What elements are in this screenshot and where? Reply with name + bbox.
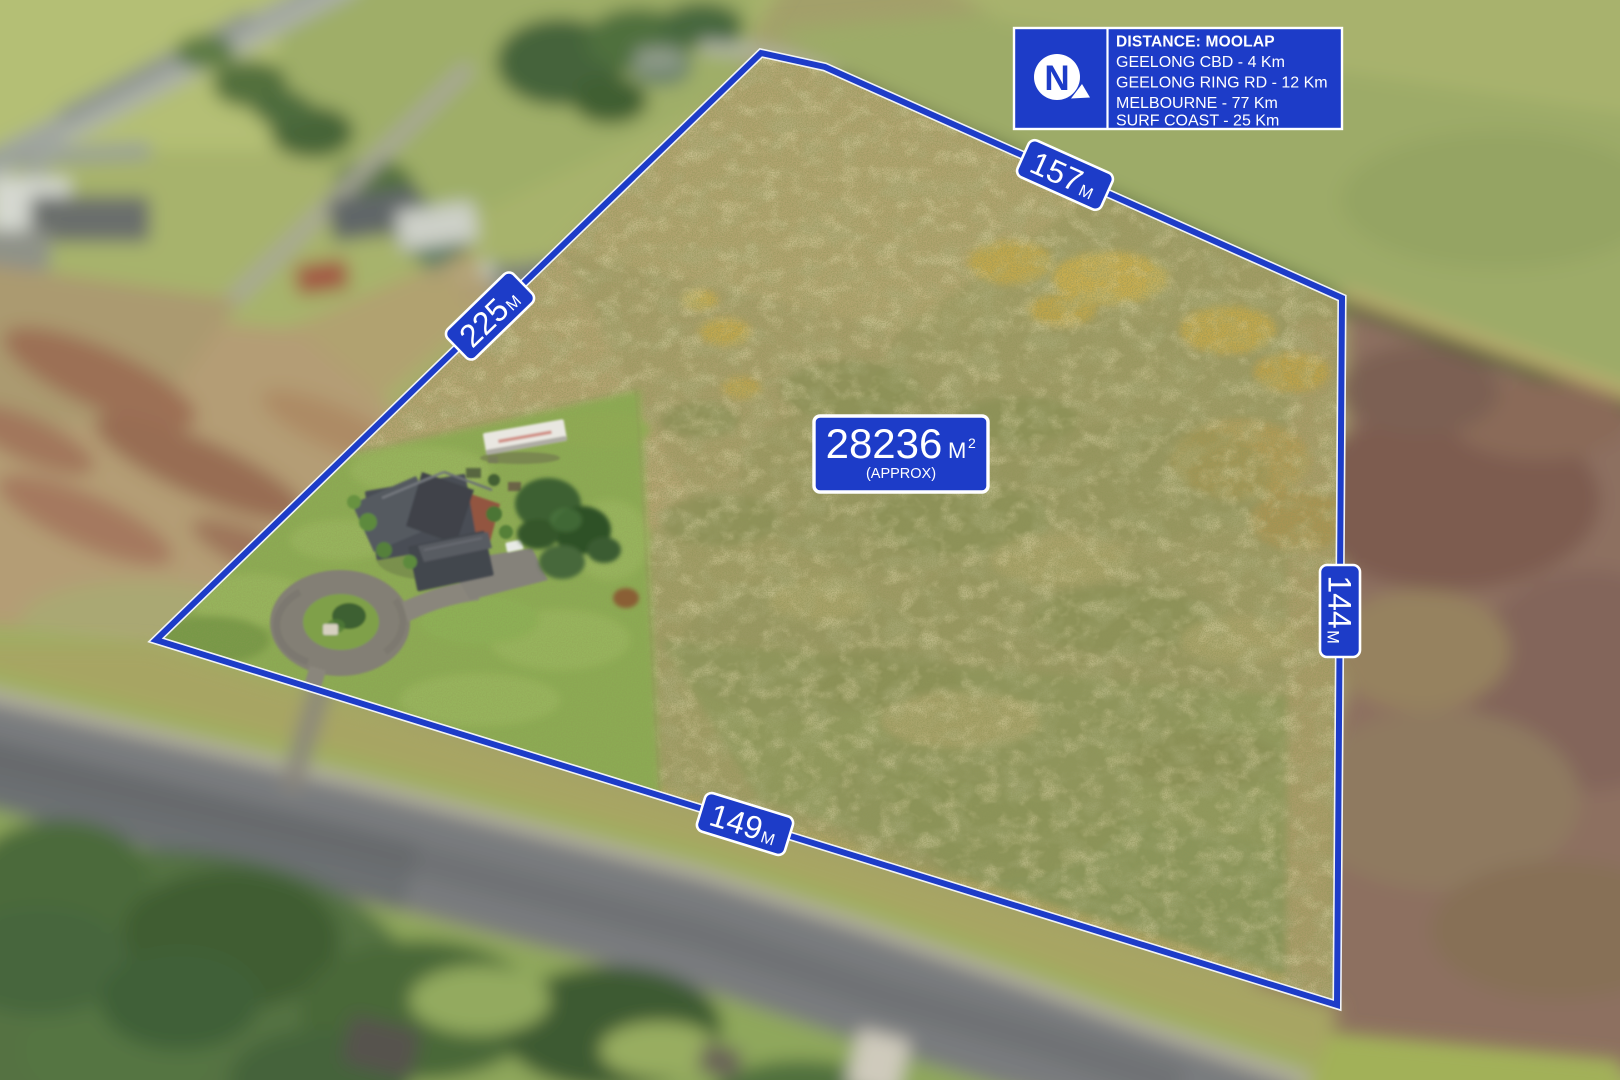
svg-text:DISTANCE: MOOLAP: DISTANCE: MOOLAP	[1116, 34, 1275, 51]
svg-text:(APPROX): (APPROX)	[866, 466, 936, 482]
svg-text:2: 2	[968, 435, 976, 451]
svg-text:GEELONG RING RD - 12 Km: GEELONG RING RD - 12 Km	[1116, 75, 1328, 92]
svg-text:SURF COAST - 25 Km: SURF COAST - 25 Km	[1116, 113, 1279, 130]
svg-text:144: 144	[1322, 575, 1358, 628]
svg-text:M: M	[948, 438, 966, 463]
svg-text:M: M	[1324, 630, 1342, 644]
svg-text:MELBOURNE - 77 Km: MELBOURNE - 77 Km	[1116, 95, 1278, 112]
svg-text:GEELONG CBD - 4 Km: GEELONG CBD - 4 Km	[1116, 54, 1285, 71]
svg-text:N: N	[1044, 59, 1069, 98]
svg-text:28236: 28236	[826, 420, 943, 467]
